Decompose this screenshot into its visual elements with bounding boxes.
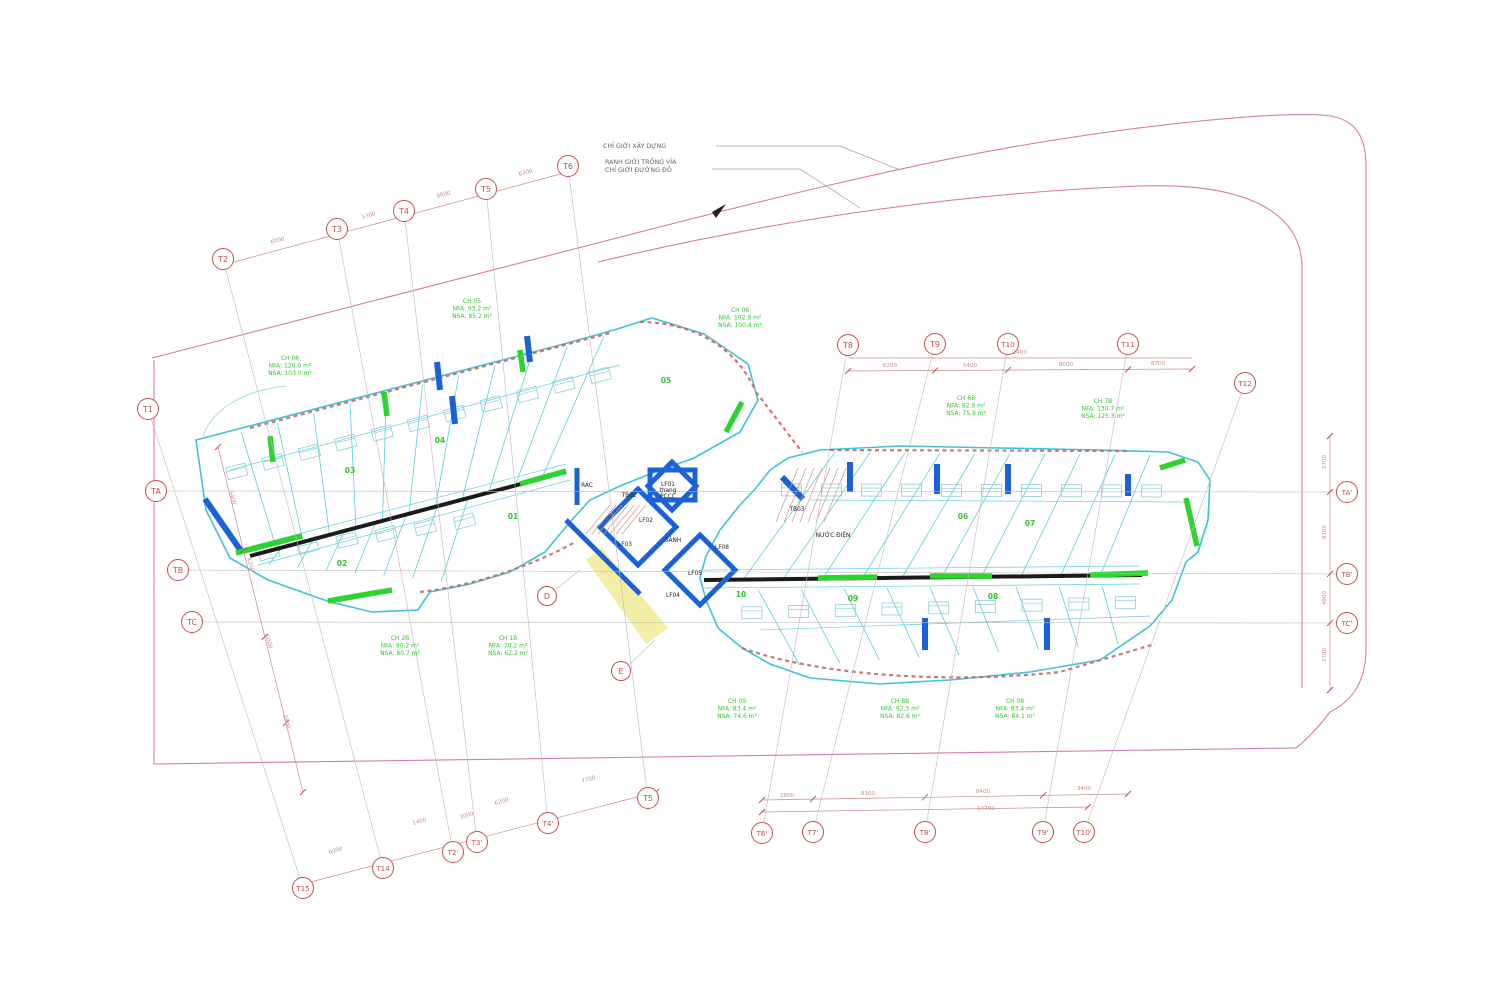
- core-label-NƯỚC-ĐIỆN: NƯỚC ĐIỆN: [816, 531, 851, 539]
- dimension-text: 8000: [436, 190, 452, 200]
- svg-text:T6: T6: [562, 162, 573, 171]
- grid-bubble-T4': T4': [538, 813, 559, 834]
- svg-text:TC': TC': [1341, 619, 1353, 628]
- svg-text:T9': T9': [1037, 828, 1049, 837]
- apartment-label: CH 08NFA: 93.4 m²NSA: 84.1 m²: [995, 698, 1035, 720]
- grid-bubble-T5: T5: [476, 179, 497, 200]
- stair-highlight-band: [586, 548, 668, 644]
- unit-number-05: 05: [661, 376, 671, 385]
- grid-bubble-T8': T8': [915, 822, 936, 843]
- svg-text:TB: TB: [172, 566, 183, 575]
- svg-text:T3: T3: [331, 225, 342, 234]
- svg-text:TA': TA': [1341, 488, 1353, 497]
- svg-text:TC: TC: [186, 618, 197, 627]
- unit-number-03: 03: [345, 466, 355, 475]
- core-label-SẢNH: SẢNH: [665, 536, 681, 544]
- svg-text:E: E: [618, 667, 623, 676]
- grid-bubble-T9: T9: [925, 334, 946, 355]
- unit-number-08: 08: [988, 592, 998, 601]
- dimension-text: 8700: [1151, 361, 1166, 367]
- apartment-label: CH 06NFA: 102.9 m²NSA: 100.4 m²: [718, 307, 762, 329]
- unit-number-07: 07: [1025, 519, 1035, 528]
- apartment-label: CH 1BNFA: 70.2 m²NSA: 62.2 m²: [488, 635, 528, 657]
- dimension-text: 14700: [977, 806, 995, 812]
- leader-line-2: [712, 169, 860, 208]
- grid-bubble-TB: TB: [168, 560, 189, 581]
- svg-text:T3': T3': [471, 838, 483, 847]
- grid-bubble-T12: T12: [1235, 373, 1256, 394]
- svg-text:T12: T12: [1237, 379, 1252, 388]
- svg-text:T2': T2': [447, 848, 459, 857]
- grid-bubble-T5: T5: [638, 788, 659, 809]
- unit-number-09: 09: [848, 594, 858, 603]
- svg-text:T15: T15: [295, 884, 310, 893]
- dimension-text: 1400: [412, 817, 428, 827]
- apartment-label: CH 06NFA: 120.0 m²NSA: 103.0 m²: [268, 355, 312, 377]
- detail-bubble-E: E: [612, 662, 631, 681]
- apartment-label: CH 7BNFA: 130.7 m²NSA: 125.3 m²: [1081, 398, 1125, 420]
- unit-number-01: 01: [508, 512, 518, 521]
- dimension-text: 4900: [1322, 590, 1328, 605]
- svg-text:T6': T6': [756, 829, 768, 838]
- leader-line-1: [716, 146, 900, 170]
- svg-text:T2: T2: [217, 255, 228, 264]
- grid-bubble-T14: T14: [373, 858, 394, 879]
- link-strip-scallop: [756, 392, 802, 452]
- grid-bubble-T10: T10: [998, 334, 1019, 355]
- svg-text:T5: T5: [480, 185, 491, 194]
- svg-text:T11: T11: [1120, 340, 1135, 349]
- apartment-label: CH 05NFA: 93.2 m²NSA: 85.2 m²: [452, 298, 492, 320]
- dimension-text: 2700: [1322, 647, 1328, 662]
- unit-number-04: 04: [435, 436, 445, 445]
- detail-bubble-D: D: [538, 587, 557, 606]
- svg-text:T10: T10: [1000, 340, 1015, 349]
- dimension-text: 8300: [861, 791, 876, 797]
- core-label-TB03: TB03: [789, 507, 805, 513]
- grid-bubble-T3': T3': [467, 832, 488, 853]
- grid-bubble-T2: T2: [213, 249, 234, 270]
- unit-number-10: 10: [736, 590, 746, 599]
- dimension-text: 8400: [976, 789, 991, 795]
- svg-text:D: D: [544, 592, 550, 601]
- floor-plan-canvas: CHỈ GIỚI XÂY DỰNGRANH GIỚI TRỒNG VỈACHỈ …: [0, 0, 1500, 1000]
- dimension-text: 5300: [361, 211, 377, 221]
- dimension-text: 2800: [780, 793, 795, 799]
- svg-text:TB': TB': [1340, 570, 1352, 579]
- grid-bubble-T3: T3: [327, 219, 348, 240]
- svg-text:T4: T4: [398, 207, 409, 216]
- dimension-text: 6000: [270, 236, 286, 246]
- apartment-label: CH 09NFA: 83.4 m²NSA: 74.6 m²: [717, 698, 757, 720]
- grid-bubble-T9': T9': [1033, 822, 1054, 843]
- unit-number-02: 02: [337, 559, 347, 568]
- dimension-text: 6200: [494, 797, 510, 807]
- note-construction-line: CHỈ GIỚI XÂY DỰNG: [603, 141, 666, 150]
- grid-bubble-T1: T1: [138, 399, 159, 420]
- core-label-LF02: LF02: [639, 518, 653, 524]
- svg-text:T7': T7': [807, 828, 819, 837]
- grid-bubble-T15: T15: [293, 878, 314, 899]
- unit-number-06: 06: [958, 512, 968, 521]
- dimension-text: 7700: [581, 775, 597, 785]
- note-sidewalk-line: RANH GIỚI TRỒNG VỈA: [605, 156, 677, 166]
- grid-bubble-T2': T2': [443, 842, 464, 863]
- core-label-LF08: LF08: [715, 545, 729, 551]
- grid-bubble-T6: T6: [558, 156, 579, 177]
- svg-text:T8: T8: [842, 341, 853, 350]
- svg-text:T1: T1: [142, 405, 153, 414]
- grid-bubble-TA': TA': [1337, 482, 1358, 503]
- apartment-label: CH 8BNFA: 92.3 m²NSA: 82.6 m²: [880, 698, 920, 720]
- dimension-text: 6200: [883, 363, 898, 369]
- apartment-label: CH 2BNFA: 90.2 m²NSA: 80.7 m²: [380, 635, 420, 657]
- svg-text:T14: T14: [375, 864, 390, 873]
- apartment-label: CH 6BNFA: 82.9 m²NSA: 75.9 m²: [946, 395, 986, 417]
- grid-bubble-TC': TC': [1337, 613, 1358, 634]
- grid-bubble-T4: T4: [394, 201, 415, 222]
- dimension-text: 6000: [263, 634, 273, 650]
- floor-plan-drawing: CHỈ GIỚI XÂY DỰNGRANH GIỚI TRỒNG VỈACHỈ …: [0, 0, 1500, 1000]
- south-boundary: [154, 748, 1296, 764]
- svg-text:T9: T9: [929, 340, 940, 349]
- grid-bubble-T6': T6': [752, 823, 773, 844]
- dimension-text: 8000: [1059, 362, 1074, 368]
- grid-bubble-T10': T10': [1074, 822, 1095, 843]
- dimension-text: 6300: [518, 168, 534, 178]
- core-label-LF01: LF01thangPCCC: [660, 482, 677, 500]
- right-wing-outline: [700, 446, 1210, 684]
- core-label-LF03: LF03: [618, 542, 632, 548]
- grid-bubble-TC: TC: [182, 612, 203, 633]
- grid-bubble-T7': T7': [803, 822, 824, 843]
- grid-bubble-T11: T11: [1118, 334, 1139, 355]
- core-label-RÁC: RÁC: [581, 482, 593, 489]
- dimension-text: 3000: [459, 811, 475, 821]
- core-label-LF04: LF04: [666, 593, 680, 599]
- grid-bubble-TA: TA: [146, 481, 167, 502]
- dimension-text: 3400: [1077, 786, 1092, 792]
- svg-text:T8': T8': [919, 828, 931, 837]
- core-label-TB02: TB02: [621, 493, 637, 499]
- dimension-text: 8100: [1322, 524, 1328, 539]
- dimension-text: 6000: [328, 846, 344, 856]
- svg-text:T10': T10': [1075, 828, 1092, 837]
- svg-text:T5: T5: [642, 794, 653, 803]
- dimension-text: 5400: [963, 363, 978, 369]
- svg-text:TA: TA: [150, 487, 161, 496]
- grid-bubble-T8: T8: [838, 335, 859, 356]
- dimension-text: 2700: [1322, 454, 1328, 469]
- grid-bubble-TB': TB': [1337, 564, 1358, 585]
- core-label-LF05: LF05: [688, 571, 702, 577]
- svg-text:T4': T4': [542, 819, 554, 828]
- dimension-text: 2800: [281, 714, 291, 730]
